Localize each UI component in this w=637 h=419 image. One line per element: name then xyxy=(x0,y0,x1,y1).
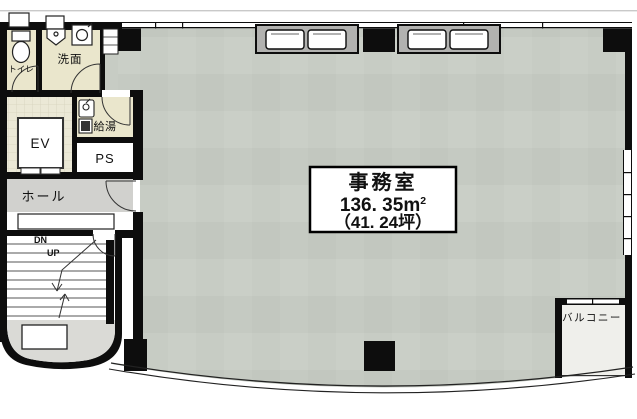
shelf xyxy=(103,29,118,54)
washroom-label: 洗面 xyxy=(58,53,83,66)
elevator: EV xyxy=(18,118,63,174)
hotwater-bottom-wall xyxy=(72,137,143,143)
area-label-box: 事務室 136. 35m2 （41. 24坪） xyxy=(310,167,456,232)
genkan-wall xyxy=(115,230,143,238)
top-window-band xyxy=(122,22,632,29)
office-name-label: 事務室 xyxy=(349,170,418,194)
stove-icon xyxy=(79,119,92,133)
washer-icon xyxy=(72,23,92,45)
up-label: UP xyxy=(47,248,60,258)
column-bottom-center xyxy=(364,341,395,371)
hot-water-label: 給湯 xyxy=(94,119,117,133)
stair-landing xyxy=(22,325,67,349)
core-right-wall-upper xyxy=(133,92,143,180)
floor-plan: DN UP xyxy=(0,0,637,419)
toilet-label: トイレ xyxy=(8,64,34,74)
right-window-band xyxy=(623,150,632,255)
stairs: DN UP xyxy=(0,230,122,369)
entry-step xyxy=(18,214,114,229)
kitchenette-sink-icon xyxy=(79,99,94,117)
office-tsubo-label: （41. 24坪） xyxy=(334,212,432,232)
pipe-space-label: PS xyxy=(95,151,114,166)
hotwater-left-wall xyxy=(72,92,77,137)
stair-divider-wall xyxy=(106,240,114,324)
ps-left-wall xyxy=(72,143,77,172)
toilet-washroom-divider xyxy=(36,29,42,90)
left-outer-wall xyxy=(0,22,7,342)
balcony-left-wall xyxy=(555,298,562,378)
balcony: バルコニー xyxy=(562,299,625,376)
hall-label: ホール xyxy=(21,189,66,204)
dn-label: DN xyxy=(34,235,47,245)
balcony-label: バルコニー xyxy=(562,312,622,324)
elevator-label: EV xyxy=(30,136,50,151)
floor-plan-svg: DN UP xyxy=(0,0,637,419)
upper-facade-line xyxy=(0,10,637,11)
